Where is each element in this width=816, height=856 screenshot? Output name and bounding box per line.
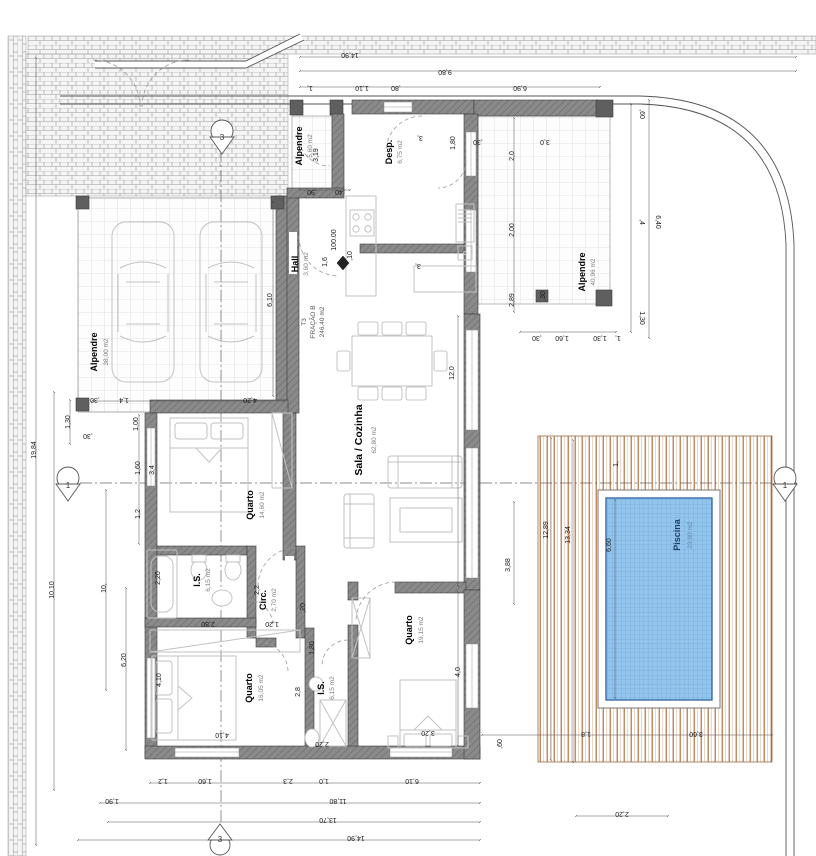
dim-label: 1, [613,461,620,467]
dim-label: 1,8 [581,730,591,737]
dim-label: 1,4 [119,396,129,403]
dim-label: 14,90 [347,834,365,841]
dim-label: 4,10 [156,673,163,687]
dim-label: ,30 [532,334,542,341]
dim-label: 2,0 [509,151,516,161]
dim-label: ,80 [391,84,401,91]
dim-label: 1,60 [198,777,212,784]
dim-label: ,40 [335,188,345,195]
section-marker-right: 1 [773,467,797,501]
dim-label: 1,10 [355,84,369,91]
dim-label: 3,4 [149,465,156,475]
room-area-hall: 3,60 m2 [303,252,310,276]
dim-label: 6,90 [513,84,527,91]
dim-label: 1,0 [319,777,329,784]
dim-label: ,90 [307,188,317,195]
dim-label: 19,84 [31,441,38,459]
dim-label: 2,20 [155,571,162,585]
dim-label: ,30 [540,291,547,301]
room-area-alpendre-entry: 5,60 m2 [307,134,314,158]
bed [388,680,468,748]
dim-label: 10, [101,583,108,593]
dim-label: 13,34 [565,526,572,544]
stove [350,210,374,236]
pool [606,498,712,700]
room-label-hall: Hall [290,256,300,273]
dim-label: 1,60 [135,461,142,475]
room-area-quarto2: 16,05 m2 [258,674,265,701]
dim-label: 2,20 [315,740,329,747]
dim-label: 2,20 [615,810,629,817]
room-area-quarto3: 19,15 m2 [418,616,425,643]
dim-label: 2,00 [509,223,516,237]
dim-label: 4,20 [243,396,257,403]
dim-label: ,10 [347,251,354,261]
dim-label: 1,80 [309,641,316,655]
room-label-piscina: Piscina [672,518,682,551]
dim-label: 6,10 [405,777,419,784]
floor-plan-page: 14,90 9,80 1, 1,10 ,80 6,90 ,60 6,40 ,4 … [0,0,816,856]
room-label-quarto1: Quarto [245,490,255,520]
dim-label: 10,10 [49,581,56,599]
svg-text:3: 3 [218,835,223,844]
dim-label: 1, [307,84,313,91]
floor-plan-canvas: 14,90 9,80 1, 1,10 ,80 6,90 ,60 6,40 ,4 … [0,0,816,856]
dim-label: 2,89 [509,293,516,307]
dim-label: 3, [415,262,421,269]
dim-label: 1,90 [105,797,119,804]
dim-label: 1,80 [450,136,457,150]
room-area-sala: 62,80 m2 [371,426,378,453]
dim-label: ,60 [638,109,645,119]
dim-label: 1,6 [322,257,329,267]
dim-label: 3,88 [505,558,512,572]
dim-label: 2,80 [201,620,215,627]
room-area-alpendre-garage: 38,00 m2 [103,338,110,365]
dim-label: 3, [417,134,423,141]
dim-label: ,20 [300,603,307,613]
room-label-alpendre-entry: Alpendre [294,126,304,165]
dim-label: 14,90 [341,51,359,58]
dim-label: ,4 [638,219,645,225]
room-area-piscina: 23,80 m2 [687,521,694,548]
dim-label: 1,30 [65,415,72,429]
room-label-alpendre-right: Alpendre [577,252,587,291]
dim-label: 6,40 [654,215,661,229]
svg-text:3: 3 [220,133,225,142]
dim-label: 3,0 [540,138,550,145]
dim-label: 2,8 [295,687,302,697]
rug [390,498,462,542]
dim-label: 2,3 [283,777,293,784]
room-label-desp: Desp. [384,140,394,165]
room-label-is1: I.S. [192,573,202,587]
dim-label: 1,60 [555,334,569,341]
fracao-line3: 246,40 m2 [319,306,326,337]
dim-label: ,30 [90,396,100,403]
dim-label: 11,80 [329,797,346,804]
dim-label: 3,60 [689,730,703,737]
section-marker-bottom: 3 [208,824,232,855]
shower [320,700,346,746]
room-label-quarto2: Quarto [244,673,254,703]
room-label-is2: I.S. [316,681,326,695]
dim-label: 6,10 [267,293,274,307]
bed [152,656,236,740]
room-label-circ: Circ. [258,590,268,610]
room-area-is1: 6,15 m2 [205,568,212,592]
room-label-alpendre-garage: Alpendre [89,332,99,371]
dim-label: 1,20 [265,620,279,627]
dim-label: 4,0 [455,667,462,677]
dim-label: 13,70 [319,816,337,823]
room-area-desp: 6,75 m2 [397,140,404,164]
room-area-circ: 2,70 m2 [271,588,278,612]
sofa [344,494,374,548]
svg-text:1: 1 [783,481,788,490]
dim-label: 9,80 [438,68,452,75]
dim-label: 1, [615,334,621,341]
sink [212,590,232,606]
dim-label: 1,2 [158,777,168,784]
dim-label: 12,89 [543,521,550,539]
dim-label: 1,30 [638,311,645,325]
dim-label: 1,2 [135,509,142,519]
wardrobe [150,630,300,652]
svg-text:1: 1 [66,481,71,490]
room-area-quarto1: 14,60 m2 [259,491,266,518]
dim-label: 1,00 [133,417,140,431]
bed [170,418,248,512]
dim-label: 3,20 [421,729,435,736]
bidet [225,555,241,580]
dim-label: ,60 [497,739,504,749]
dining-table [337,322,447,400]
room-area-alpendre-right: 40,96 m2 [590,258,597,285]
room-area-is2: 6,15 m2 [329,676,336,700]
dim-label: 12,0 [449,366,456,380]
dim-label: 6,60 [606,538,613,552]
section-marker-left: 1 [56,467,80,501]
room-label-sala: Sala / Cozinha [353,404,365,475]
fracao-line2: FRAÇÃO B [308,305,317,338]
dim-label: 4,10 [215,731,229,738]
dim-label: ,30 [473,138,483,145]
fracao-line1: T3 [301,318,308,326]
dim-label: ,30 [83,432,93,439]
dim-label: 1,30 [593,334,607,341]
dim-label: 3,19 [313,148,320,162]
room-label-quarto3: Quarto [404,615,414,645]
dim-label: 6,20 [121,653,128,667]
level-value: 100.00 [331,229,338,251]
